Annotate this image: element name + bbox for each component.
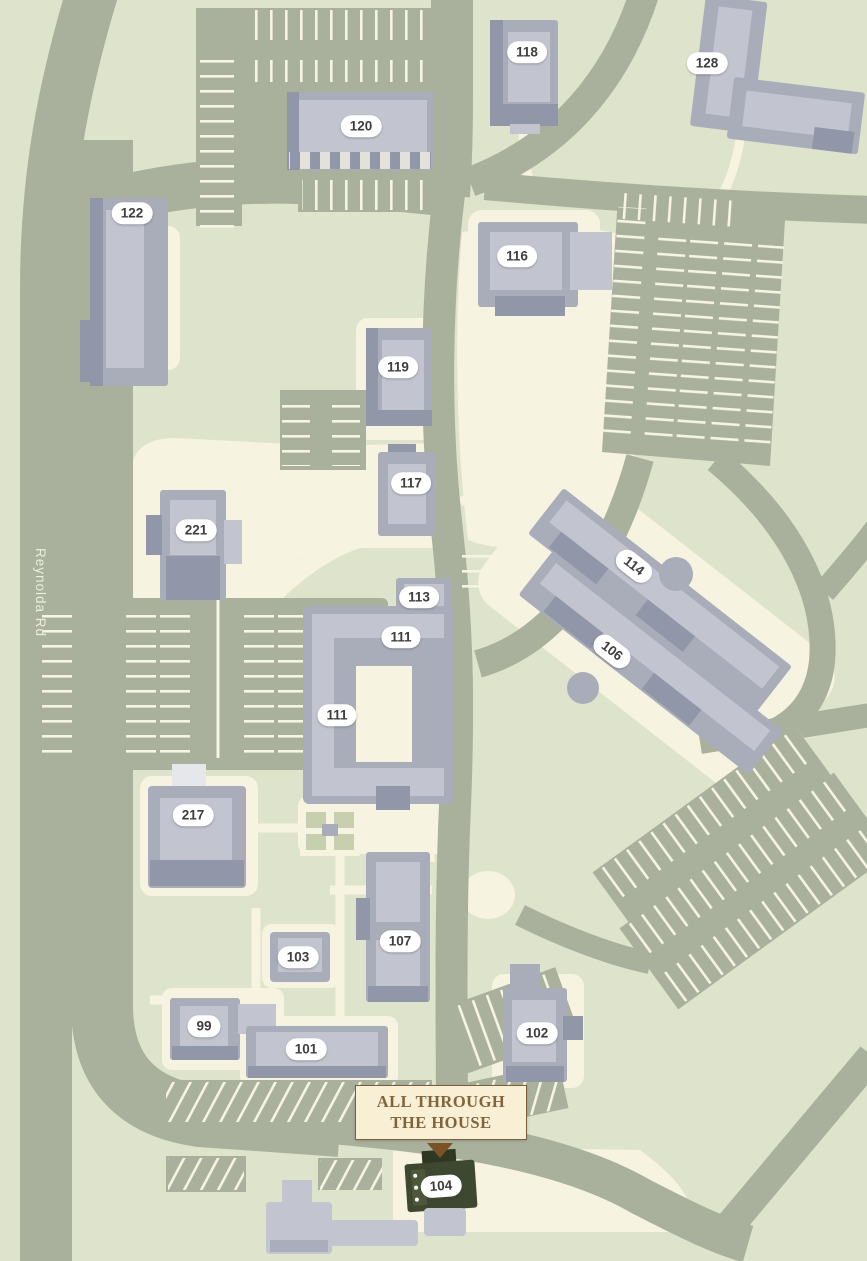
selected-store-callout[interactable]: ALL THROUGH THE HOUSE: [355, 1085, 527, 1140]
building-label-217[interactable]: 217: [173, 804, 214, 826]
callout-arrow-icon: [427, 1143, 453, 1158]
building-label-117[interactable]: 117: [391, 472, 431, 494]
building-label-221[interactable]: 221: [176, 519, 217, 541]
building-104-outbuilding: [424, 1208, 466, 1236]
map-canvas: [0, 0, 867, 1261]
village-directory-map: Reynolda Rd 118 128 120 122 116 119 117 …: [0, 0, 867, 1261]
building-107: [356, 852, 430, 1002]
building-label-102[interactable]: 102: [517, 1022, 558, 1044]
callout-line-1: ALL THROUGH: [358, 1091, 524, 1112]
building-label-104[interactable]: 104: [420, 1174, 462, 1198]
street-label-reynolda-rd: Reynolda Rd: [33, 548, 48, 637]
building-label-113[interactable]: 113: [399, 586, 439, 608]
building-label-119[interactable]: 119: [378, 356, 418, 378]
garden-square: [300, 806, 360, 856]
building-label-107[interactable]: 107: [380, 930, 421, 952]
building-label-116[interactable]: 116: [497, 245, 537, 267]
building-label-128[interactable]: 128: [687, 52, 728, 74]
building-label-103[interactable]: 103: [278, 946, 319, 968]
building-label-99[interactable]: 99: [187, 1015, 220, 1037]
building-label-111-north[interactable]: 111: [381, 626, 420, 648]
building-label-101[interactable]: 101: [286, 1038, 327, 1060]
callout-line-2: THE HOUSE: [358, 1112, 524, 1133]
building-118: [490, 20, 558, 134]
building-label-111-south[interactable]: 111: [317, 704, 356, 726]
building-122: [80, 198, 168, 386]
building-label-118[interactable]: 118: [507, 41, 547, 63]
building-label-122[interactable]: 122: [112, 202, 153, 224]
building-label-120[interactable]: 120: [341, 115, 382, 137]
